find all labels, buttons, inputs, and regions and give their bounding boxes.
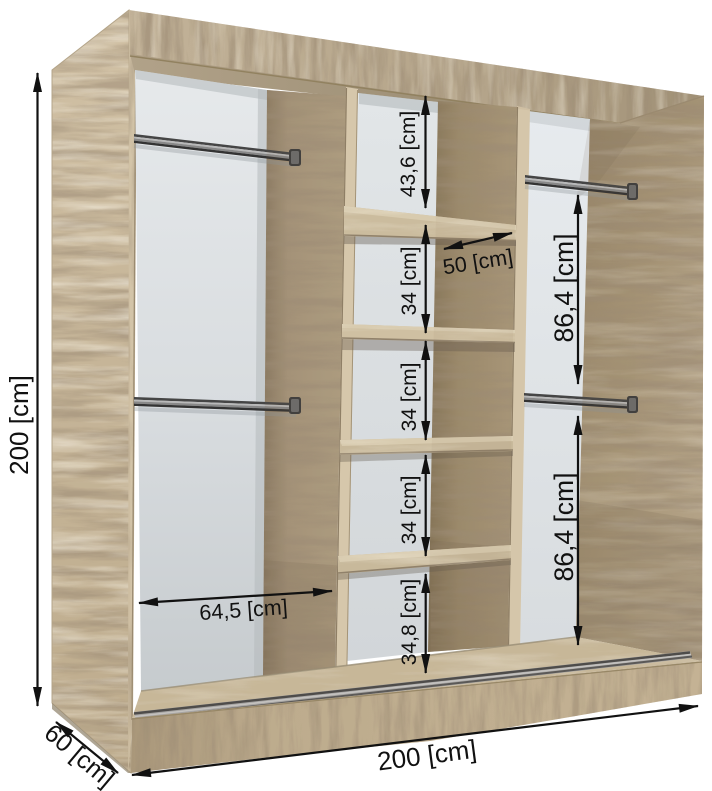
svg-text:43,6 [cm]: 43,6 [cm] [397,111,420,197]
svg-text:86,4 [cm]: 86,4 [cm] [549,234,579,343]
svg-text:34 [cm]: 34 [cm] [398,476,421,545]
svg-text:34 [cm]: 34 [cm] [398,363,421,432]
svg-text:200 [cm]: 200 [cm] [4,375,34,475]
svg-text:34,8 [cm]: 34,8 [cm] [398,579,421,665]
svg-text:86,4 [cm]: 86,4 [cm] [549,473,579,582]
svg-text:34 [cm]: 34 [cm] [398,247,421,316]
